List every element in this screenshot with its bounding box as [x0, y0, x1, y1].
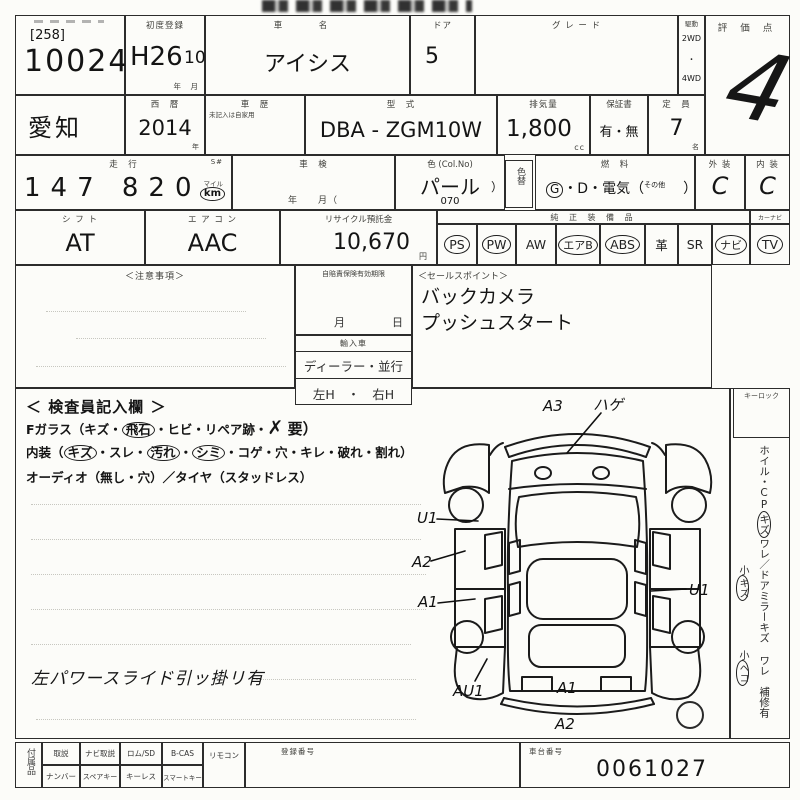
fuel-label: 燃 料: [536, 158, 694, 170]
model-code-value: DBA - ZGM10W: [306, 118, 496, 142]
mark-hood-peel: ハゲ: [593, 396, 625, 414]
drive-4wd: 4WD: [679, 74, 704, 83]
color-paren: ）: [491, 178, 503, 195]
acc-manual: 取説: [42, 742, 80, 765]
interior-circled-dirt: 汚れ: [147, 445, 180, 461]
exterior-grade-value: C: [696, 172, 744, 200]
interior-line: 内装（キズ・スレ・汚れ・シミ・コゲ・穴・キレ・破れ・割れ）: [26, 442, 413, 461]
handwritten-note: 左パワースライド引ッ掛リ有: [31, 664, 264, 689]
recycle-fee-cell: リサイクル預託金 10,670 円: [280, 210, 437, 265]
shift-cell: シ フ ト AT: [15, 210, 145, 265]
aircon-value: AAC: [146, 229, 279, 257]
exterior-grade-label: 外 装: [696, 158, 744, 170]
equip-navi: ナビ: [712, 224, 750, 265]
lot-number: 10024: [24, 44, 129, 79]
chassis-number-value: 0061027: [596, 757, 708, 782]
car-name-label: 車 名: [206, 19, 409, 31]
sidebar-small-dent: 小ヘコ: [735, 650, 750, 730]
accessories-label-cell: 付属品: [15, 742, 42, 788]
sidebar-circled-scratch: キズ: [757, 511, 771, 538]
fglass-line: Fガラス（キズ・飛石・ヒビ・リペア跡・✗ 要）: [26, 417, 318, 439]
displacement-unit: cc: [574, 143, 585, 152]
warranty-cell: 保証書 有・無: [590, 95, 648, 155]
stamp-circle: [677, 702, 703, 728]
history-note: 未記入は自家用: [209, 109, 255, 119]
sales-point-1: バックカメラ: [421, 282, 535, 309]
top-title-smudge: [262, 0, 472, 12]
import-car-label: 輸入車: [296, 338, 411, 352]
first-registration-month: 10: [184, 48, 206, 68]
mark-left-rear-door: A1: [417, 593, 438, 611]
registration-number-cell: 登録番号: [245, 742, 520, 788]
mark-front-bumper: A3: [542, 397, 563, 415]
year-value: 2014: [126, 116, 204, 140]
car-damage-diagram: A3 ハゲ U1 A2 A1 AU1 U1 A1 A2: [405, 393, 715, 733]
import-handle-side: 左H ・ 右H: [296, 384, 411, 403]
color-change-cell: 色替: [505, 160, 533, 208]
lot-header-marks: [34, 20, 104, 23]
drive-separator: ・: [679, 54, 704, 65]
fglass-x-mark: ✗: [267, 417, 283, 439]
acc-keyless: キーレス: [120, 765, 162, 788]
recycle-fee-unit: 円: [419, 251, 428, 262]
serial-label: S#: [211, 158, 223, 166]
mark-left-fender: U1: [417, 509, 438, 527]
keylock-label: キーロック: [734, 391, 789, 401]
shaken-label: 車 検: [233, 158, 394, 170]
fuel-gasoline: G: [546, 182, 563, 198]
interior-circled-scratch: キズ: [64, 445, 97, 461]
door-value: 5: [425, 44, 439, 69]
score-cell: 評 価 点 4: [705, 15, 790, 155]
color-number: 070: [396, 196, 504, 207]
displacement-label: 排気量: [498, 98, 589, 110]
shaken-cell: 車 検 年 月（: [232, 155, 395, 210]
first-registration-era: H26: [130, 42, 183, 72]
color-label: 色 (Col.No): [396, 158, 504, 170]
equip-leather: 革: [645, 224, 678, 265]
car-name-cell: 車 名 アイシス: [205, 15, 410, 95]
interior-circled-stain: シミ: [192, 445, 225, 461]
audio-tire-line: オーディオ（無し・穴）／タイヤ（スタッドレス）: [26, 467, 312, 486]
interior-grade-cell: 内 装 C: [745, 155, 790, 210]
mark-left-quarter: AU1: [452, 682, 484, 700]
sales-points-cell: ＜セールスポイント＞ バックカメラ プッシュスタート: [412, 265, 712, 388]
mark-rear-bumper: A2: [554, 715, 575, 733]
equip-airbag: エアB: [556, 224, 600, 265]
shift-label: シ フ ト: [16, 213, 144, 225]
acc-rom-sd: ロム/SD: [120, 742, 162, 765]
fuel-cell: 燃 料 G・D・電気（その他）: [535, 155, 695, 210]
chassis-number-label: 車台番号: [529, 746, 563, 757]
sidebar-wheel-note: ホイル・CPキズワレ／ドアミラーキズ ワレ 補修有: [757, 445, 771, 737]
acc-navi-manual: ナビ取説: [80, 742, 120, 765]
equip-ps: PS: [437, 224, 477, 265]
capacity-label: 定 員: [649, 98, 704, 110]
mileage-km-unit: km: [200, 187, 225, 201]
aircon-cell: エ ア コ ン AAC: [145, 210, 280, 265]
lot-cell: [258] 10024: [15, 15, 125, 95]
recycle-fee-value: 10,670: [333, 230, 410, 255]
fuel-value: G・D・電気（その他）: [546, 178, 697, 198]
acc-spare-key: スペアキー: [80, 765, 120, 788]
insurance-expiry-cell: 自賠責保険有効期限 月 日: [295, 265, 412, 335]
year-label: 西 暦: [126, 98, 204, 110]
drive-cell: 駆動 2WD ・ 4WD: [678, 15, 705, 95]
exterior-grade-cell: 外 装 C: [695, 155, 745, 210]
warranty-value: 有・無: [591, 121, 647, 140]
region-cell: 愛知: [15, 95, 125, 155]
shift-value: AT: [16, 229, 144, 257]
inspector-title: ＜ 検査員記入欄 ＞: [26, 396, 166, 417]
notes-label: ＜注意事項＞: [16, 269, 294, 282]
acc-smart-key: スマートキー: [162, 765, 203, 788]
interior-grade-value: C: [746, 172, 789, 200]
drive-label: 駆動: [679, 18, 704, 28]
lot-prefix: [258]: [30, 28, 65, 43]
year-cell: 西 暦 2014 年: [125, 95, 205, 155]
import-dealer-parallel: ディーラー・並行: [296, 356, 411, 375]
score-value: 4: [713, 31, 800, 147]
equipment-extra-header: カーナビ: [750, 210, 790, 224]
auction-sheet: [258] 10024 初度登録 H26 10 年 月 車 名 アイシス ドア …: [0, 0, 800, 800]
fuel-other: その他: [644, 181, 665, 189]
warranty-label: 保証書: [591, 98, 647, 110]
color-change-label: 色替: [514, 167, 527, 185]
import-divider: [296, 378, 411, 379]
equip-tv: TV: [750, 224, 790, 265]
grade-cell: グ レ ー ド: [475, 15, 678, 95]
keylock-cell: キーロック: [733, 388, 790, 438]
registration-number-label: 登録番号: [281, 746, 315, 757]
region-value: 愛知: [28, 108, 82, 143]
equip-pw: PW: [477, 224, 516, 265]
mark-right-side: U1: [689, 581, 710, 599]
acc-number-plate: ナンバー: [42, 765, 80, 788]
history-cell: 車 歴 未記入は自家用: [205, 95, 305, 155]
interior-grade-label: 内 装: [746, 158, 789, 170]
chassis-number-cell: 車台番号 0061027: [520, 742, 790, 788]
first-registration-units: 年 月: [174, 81, 200, 92]
acc-bcas: B-CAS: [162, 742, 203, 765]
aircon-label: エ ア コ ン: [146, 213, 279, 225]
door-label: ドア: [411, 19, 474, 31]
capacity-unit: 名: [692, 142, 700, 152]
expiry-day-label: 日: [392, 314, 403, 330]
capacity-cell: 定 員 7 名: [648, 95, 705, 155]
first-registration-cell: 初度登録 H26 10 年 月: [125, 15, 205, 95]
equipment-header: 純 正 装 備 品: [437, 210, 750, 224]
equip-abs: ABS: [600, 224, 645, 265]
displacement-cell: 排気量 1,800 cc: [497, 95, 590, 155]
notes-cell: ＜注意事項＞: [15, 265, 295, 388]
color-cell: 色 (Col.No) パール 070 ）: [395, 155, 505, 210]
insurance-expiry-label: 自賠責保険有効期限: [296, 269, 411, 279]
door-cell: ドア 5: [410, 15, 475, 95]
drive-2wd: 2WD: [679, 34, 704, 43]
mileage-label: 走 行: [16, 158, 231, 170]
grade-label: グ レ ー ド: [476, 19, 677, 31]
equip-aw: AW: [516, 224, 556, 265]
model-code-cell: 型 式 DBA - ZGM10W: [305, 95, 497, 155]
mark-left-front-door: A2: [411, 553, 432, 571]
import-car-cell: 輸入車 ディーラー・並行 左H ・ 右H: [295, 335, 412, 405]
capacity-value: 7: [649, 116, 704, 141]
mark-rear-gate: A1: [556, 679, 577, 697]
acc-remote: リモコン: [203, 742, 245, 788]
model-code-label: 型 式: [306, 98, 496, 110]
recycle-fee-label: リサイクル預託金: [281, 213, 436, 225]
mileage-cell: 走 行 S# 147 820 マイル km: [15, 155, 232, 210]
equip-sr: SR: [678, 224, 712, 265]
sales-points-label: ＜セールスポイント＞: [418, 269, 508, 282]
car-name-value: アイシス: [206, 46, 409, 78]
expiry-month-label: 月: [334, 314, 345, 330]
first-registration-label: 初度登録: [126, 19, 204, 31]
mileage-value: 147 820: [24, 173, 202, 203]
shaken-units: 年 月（: [288, 193, 338, 206]
sales-point-2: プッシュスタート: [421, 308, 573, 335]
sidebar-small-scratch: 小キズ: [735, 565, 750, 645]
year-unit: 年: [192, 142, 200, 152]
fglass-circled-stone: 飛石: [122, 422, 155, 438]
displacement-value: 1,800: [506, 116, 572, 142]
